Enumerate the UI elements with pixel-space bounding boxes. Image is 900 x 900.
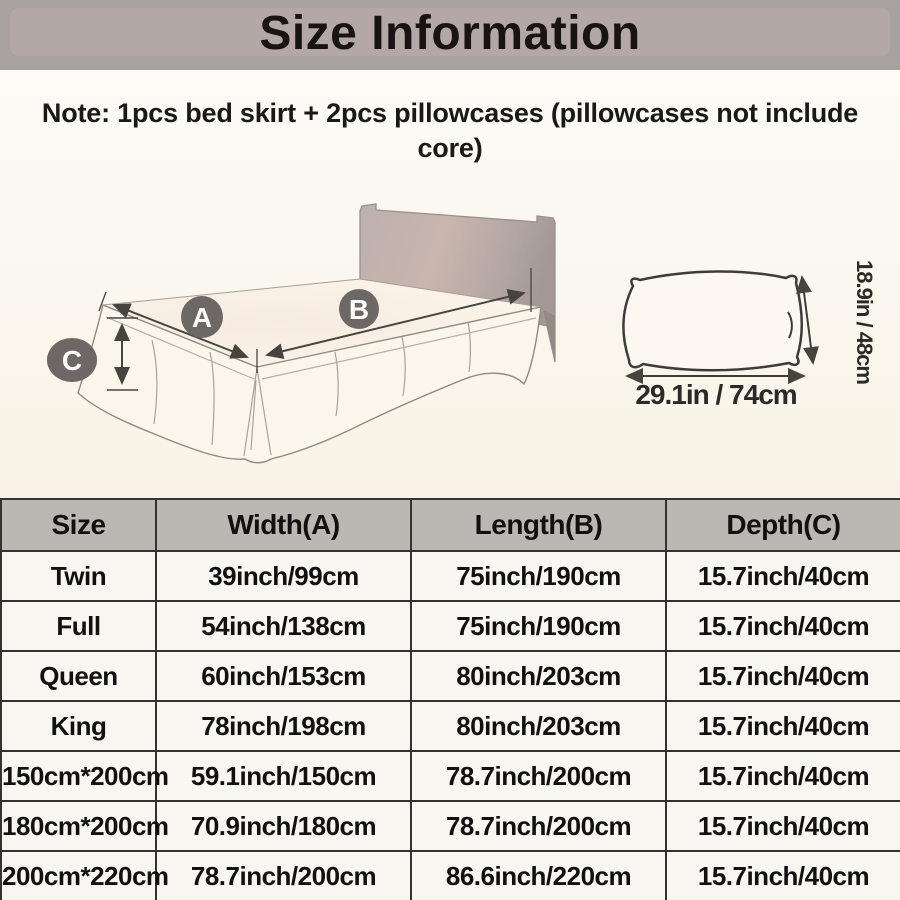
cell-depth: 15.7inch/40cm bbox=[666, 751, 900, 801]
cell-width: 39inch/99cm bbox=[156, 551, 411, 601]
table-row-queen: Queen 60inch/153cm 80inch/203cm 15.7inch… bbox=[1, 651, 900, 701]
table-row-king: King 78inch/198cm 80inch/203cm 15.7inch/… bbox=[1, 701, 900, 751]
table-row-twin: Twin 39inch/99cm 75inch/190cm 15.7inch/4… bbox=[1, 551, 900, 601]
cell-depth: 15.7inch/40cm bbox=[666, 801, 900, 851]
label-b: B bbox=[349, 294, 369, 325]
pillow-outline bbox=[623, 271, 801, 370]
title-banner: Size Information bbox=[0, 0, 900, 70]
cell-size: 150cm*200cm bbox=[1, 751, 156, 801]
label-c: C bbox=[62, 345, 82, 376]
cell-size: Twin bbox=[1, 551, 156, 601]
header-size: Size bbox=[1, 499, 156, 551]
note-section: Note: 1pcs bed skirt + 2pcs pillowcases … bbox=[0, 70, 900, 190]
pillow-width-label: 29.1in / 74cm bbox=[635, 379, 796, 410]
cell-size: Full bbox=[1, 601, 156, 651]
pillow-height-label: 18.9in / 48cm bbox=[852, 260, 877, 384]
pillow-height-arrow bbox=[802, 277, 813, 363]
cell-length: 78.7inch/200cm bbox=[411, 801, 666, 851]
table-row-200x220: 200cm*220cm 78.7inch/200cm 86.6inch/220c… bbox=[1, 851, 900, 900]
header-width-a: Width(A) bbox=[156, 499, 411, 551]
label-a: A bbox=[192, 302, 212, 333]
label-a-badge: A bbox=[181, 296, 223, 338]
cell-width: 78inch/198cm bbox=[156, 701, 411, 751]
table-row-full: Full 54inch/138cm 75inch/190cm 15.7inch/… bbox=[1, 601, 900, 651]
cell-length: 78.7inch/200cm bbox=[411, 751, 666, 801]
cell-depth: 15.7inch/40cm bbox=[666, 651, 900, 701]
cell-width: 60inch/153cm bbox=[156, 651, 411, 701]
cell-size: King bbox=[1, 701, 156, 751]
cell-length: 86.6inch/220cm bbox=[411, 851, 666, 900]
cell-length: 75inch/190cm bbox=[411, 551, 666, 601]
table-row-180x200: 180cm*200cm 70.9inch/180cm 78.7inch/200c… bbox=[1, 801, 900, 851]
cell-size: Queen bbox=[1, 651, 156, 701]
cell-depth: 15.7inch/40cm bbox=[666, 601, 900, 651]
cell-depth: 15.7inch/40cm bbox=[666, 851, 900, 900]
size-table: Size Width(A) Length(B) Depth(C) Twin 39… bbox=[0, 498, 900, 900]
size-table-header-row: Size Width(A) Length(B) Depth(C) bbox=[1, 499, 900, 551]
cell-length: 80inch/203cm bbox=[411, 651, 666, 701]
cell-depth: 15.7inch/40cm bbox=[666, 551, 900, 601]
label-c-badge: C bbox=[47, 338, 97, 382]
bed-and-pillow-diagram: A B C 18.9in / 48cm 29.1in / 74cm bbox=[0, 190, 900, 498]
header-depth-c: Depth(C) bbox=[666, 499, 900, 551]
cell-size: 180cm*200cm bbox=[1, 801, 156, 851]
cell-width: 78.7inch/200cm bbox=[156, 851, 411, 900]
table-row-150x200: 150cm*200cm 59.1inch/150cm 78.7inch/200c… bbox=[1, 751, 900, 801]
cell-length: 75inch/190cm bbox=[411, 601, 666, 651]
cell-size: 200cm*220cm bbox=[1, 851, 156, 900]
info-section: Note: 1pcs bed skirt + 2pcs pillowcases … bbox=[0, 70, 900, 498]
header-length-b: Length(B) bbox=[411, 499, 666, 551]
cell-depth: 15.7inch/40cm bbox=[666, 701, 900, 751]
label-b-badge: B bbox=[339, 289, 379, 329]
note-text: Note: 1pcs bed skirt + 2pcs pillowcases … bbox=[39, 96, 861, 166]
cell-width: 70.9inch/180cm bbox=[156, 801, 411, 851]
cell-length: 80inch/203cm bbox=[411, 701, 666, 751]
cell-width: 54inch/138cm bbox=[156, 601, 411, 651]
cell-width: 59.1inch/150cm bbox=[156, 751, 411, 801]
page-title: Size Information bbox=[0, 0, 900, 70]
